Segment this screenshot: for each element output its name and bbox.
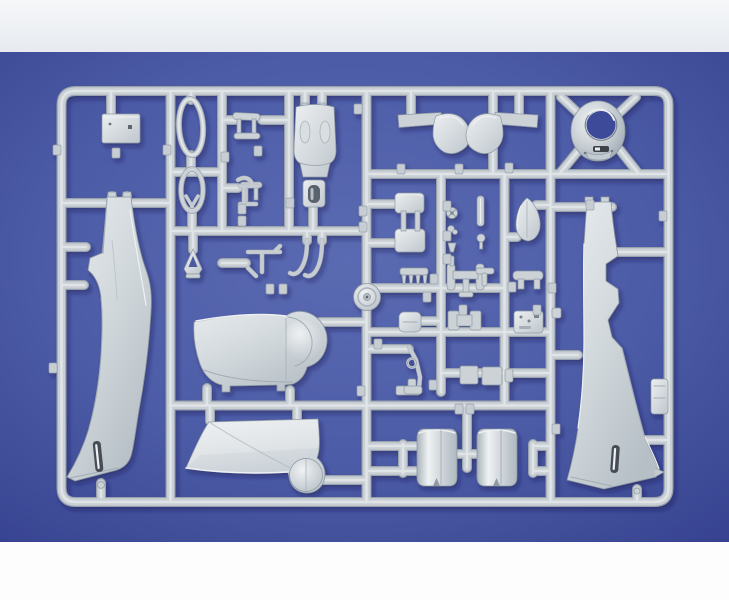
part-number-tag — [552, 424, 560, 434]
part-number-tag — [254, 146, 262, 156]
part-number-tag — [466, 404, 474, 414]
part-number-tag — [112, 148, 120, 158]
part-number-tag — [359, 206, 367, 216]
part-number-tag — [505, 163, 513, 173]
photo-frame — [0, 0, 729, 600]
part-number-tag — [443, 254, 451, 264]
part-number-tag — [357, 386, 365, 396]
sprue-photo — [0, 0, 729, 600]
part-number-tag — [429, 380, 437, 390]
part-number-tag — [354, 104, 362, 114]
part-number-tag — [53, 145, 61, 155]
sprue-pin — [98, 482, 105, 489]
part-number-tag — [508, 282, 516, 292]
part-number-tag — [533, 305, 541, 315]
part-number-tag — [286, 198, 294, 208]
part-number-tag — [548, 283, 556, 293]
part-number-tag — [238, 204, 246, 214]
part-number-tag — [397, 164, 405, 174]
part-number-tag — [455, 404, 463, 414]
small-fitting — [552, 308, 561, 318]
part-number-tag — [266, 284, 274, 294]
part-number-tag — [163, 145, 171, 155]
sprue-pin — [634, 488, 640, 494]
gun-cover-panel — [303, 180, 325, 207]
spinner-backplate — [354, 284, 381, 311]
top-white-strip — [0, 0, 729, 52]
part-number-tag — [430, 274, 438, 284]
part-number-tag — [443, 231, 451, 241]
part-number-tag — [359, 222, 367, 232]
part-number-tag — [659, 211, 667, 221]
part-number-tag — [49, 363, 57, 373]
instrument-panel-plate — [102, 114, 140, 143]
part-number-tag — [374, 339, 382, 349]
part-number-tag — [221, 152, 229, 162]
part-number-tag — [455, 164, 463, 174]
upper-fuselage-decking — [294, 103, 336, 177]
part-number-tag — [423, 292, 431, 302]
engine-cowling-ring — [571, 101, 625, 161]
bottom-white-strip — [0, 542, 729, 600]
access-hatch — [651, 379, 668, 414]
part-number-tag — [586, 200, 594, 210]
part-number-tag — [443, 201, 451, 211]
part-number-tag — [238, 216, 246, 226]
part-number-tag — [459, 305, 467, 315]
part-number-tag — [279, 284, 287, 294]
